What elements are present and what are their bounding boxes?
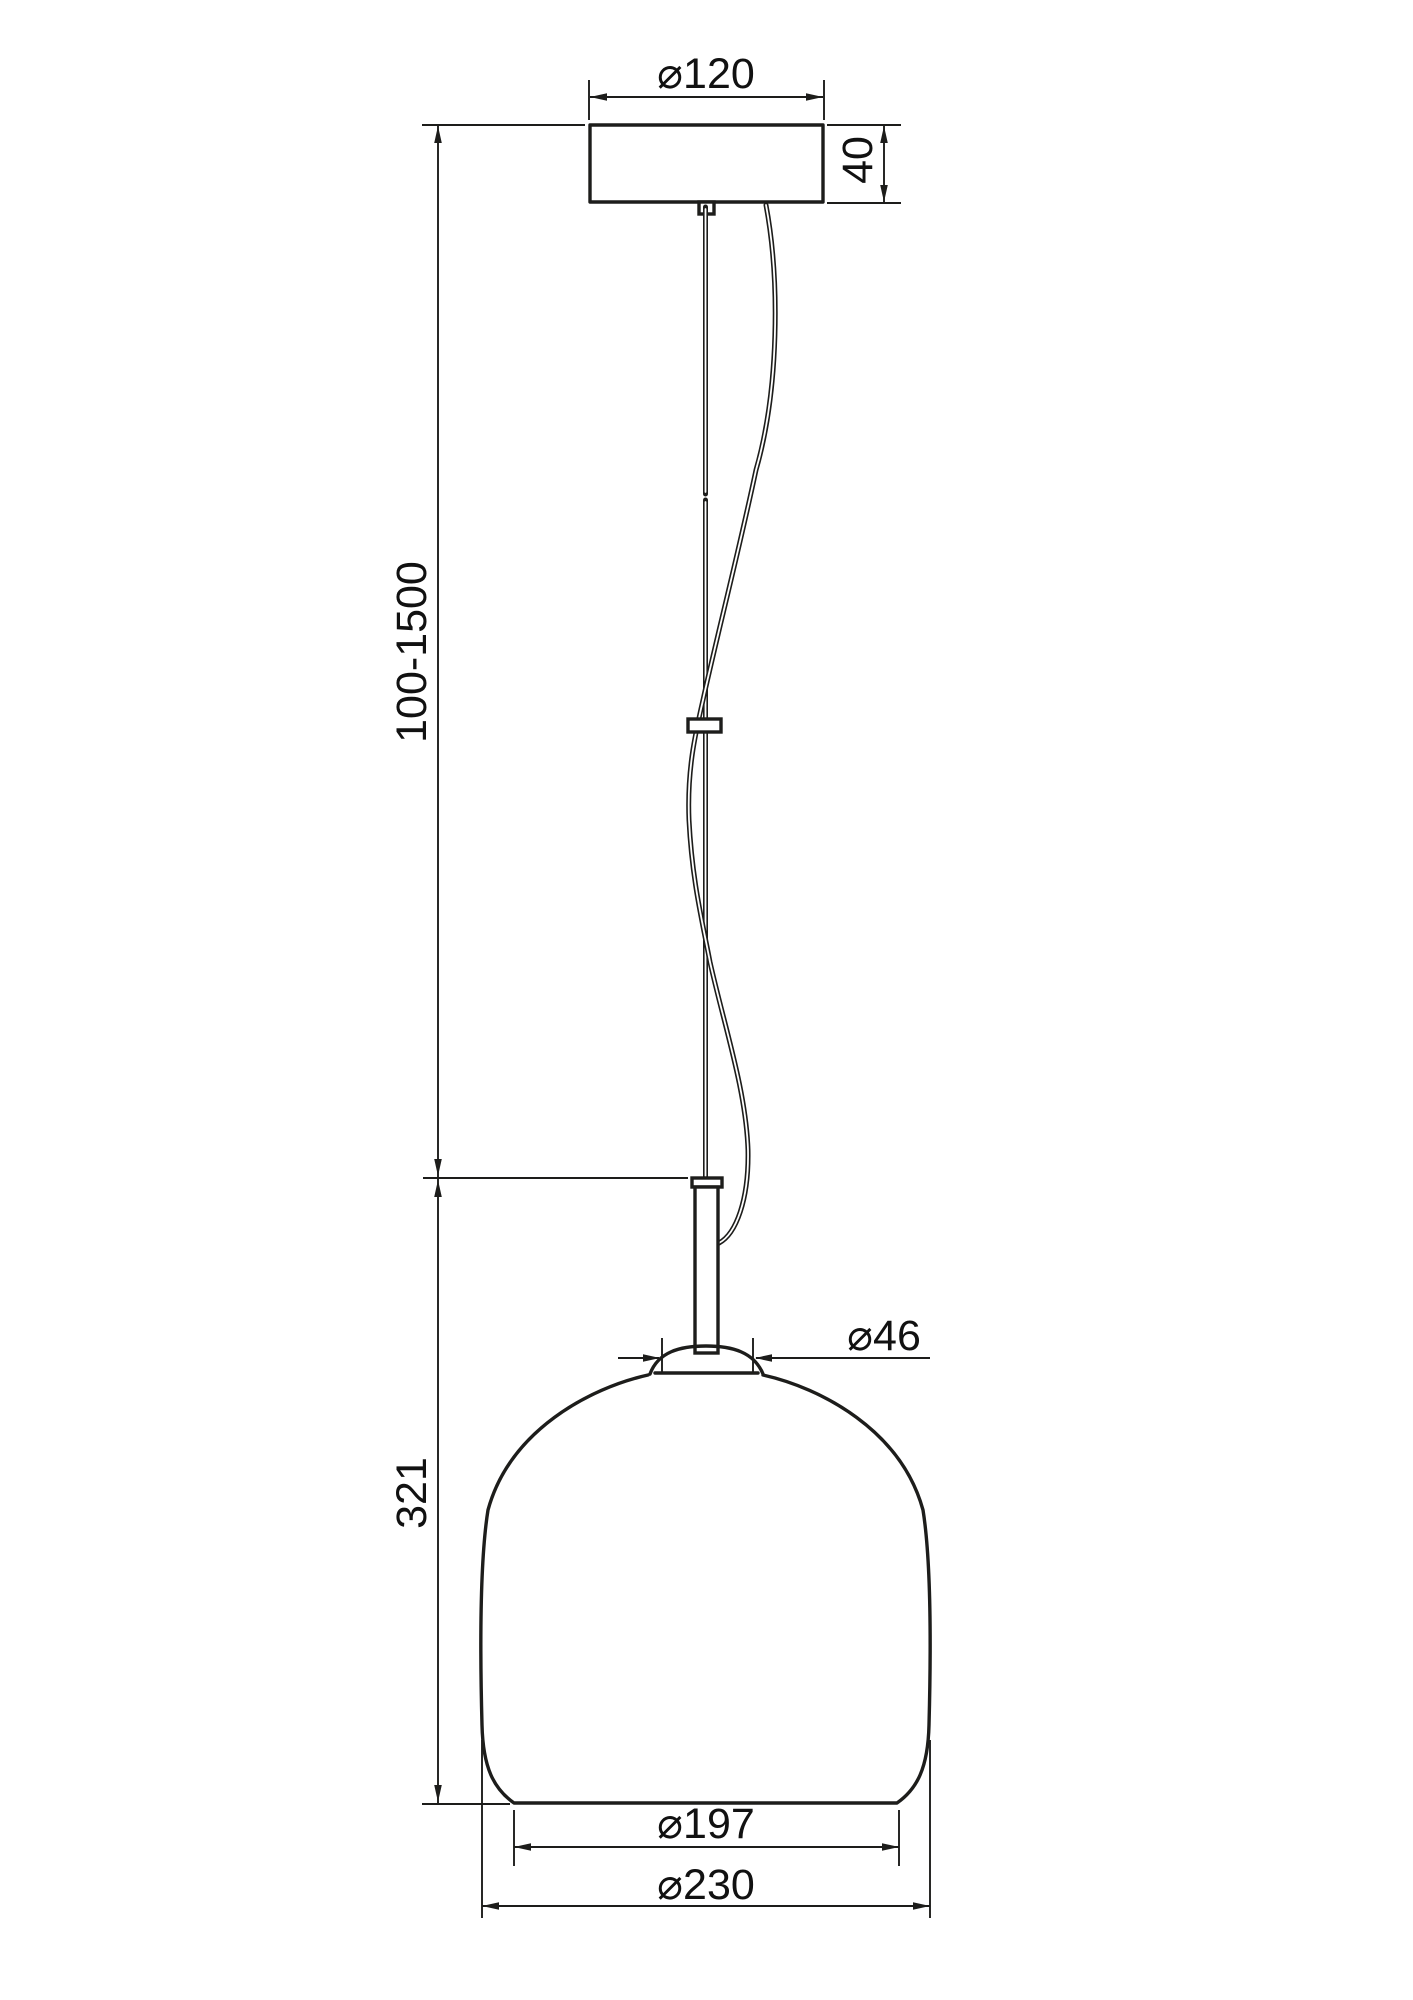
dim-label-suspension-length: 100-1500	[388, 561, 436, 743]
dimension-canopy-diameter: ⌀120	[589, 50, 824, 120]
dimension-shade-height: 321	[388, 1178, 510, 1804]
dim-arrow-right	[882, 1843, 899, 1851]
dim-arrow-left-pointing	[755, 1354, 772, 1362]
dimension-neck-diameter: ⌀46	[618, 1312, 930, 1372]
dim-label-outer-diameter: ⌀230	[657, 1861, 755, 1909]
canopy-group	[590, 125, 823, 214]
stem-tube	[695, 1187, 718, 1353]
pendant-lamp-dimension-drawing: ⌀120 40 100-1500 321 ⌀46	[0, 0, 1413, 2000]
dim-arrow-left	[514, 1843, 531, 1851]
dim-label-shade-height: 321	[388, 1457, 436, 1529]
power-cord-group	[688, 205, 775, 1243]
dim-arrow-up	[434, 126, 442, 143]
dim-label-canopy-height: 40	[834, 136, 882, 184]
dimension-canopy-height: 40	[827, 125, 901, 203]
dim-arrow-right	[913, 1902, 930, 1910]
dim-arrow-right	[806, 93, 823, 101]
shade-outline	[481, 1375, 930, 1803]
dim-arrow-down	[434, 1159, 442, 1176]
dim-arrow-left	[590, 93, 607, 101]
dim-label-neck-diameter: ⌀46	[847, 1312, 921, 1360]
dim-arrow-down	[880, 185, 888, 202]
dim-arrow-up	[434, 1180, 442, 1197]
lamp-shade-group	[481, 1346, 930, 1803]
dimension-bottom-inner-diameter: ⌀197	[514, 1800, 899, 1866]
canopy-body	[590, 125, 823, 202]
stem-group	[692, 1178, 722, 1353]
dim-label-canopy-diameter: ⌀120	[657, 50, 755, 98]
technical-drawing-page: ⌀120 40 100-1500 321 ⌀46	[0, 0, 1413, 2000]
dim-arrow-left	[482, 1902, 499, 1910]
dim-arrow-down	[434, 1785, 442, 1802]
dim-label-bottom-inner-diameter: ⌀197	[657, 1800, 755, 1848]
cord-clamp	[688, 719, 721, 732]
dimension-suspension-length: 100-1500	[388, 125, 585, 1178]
